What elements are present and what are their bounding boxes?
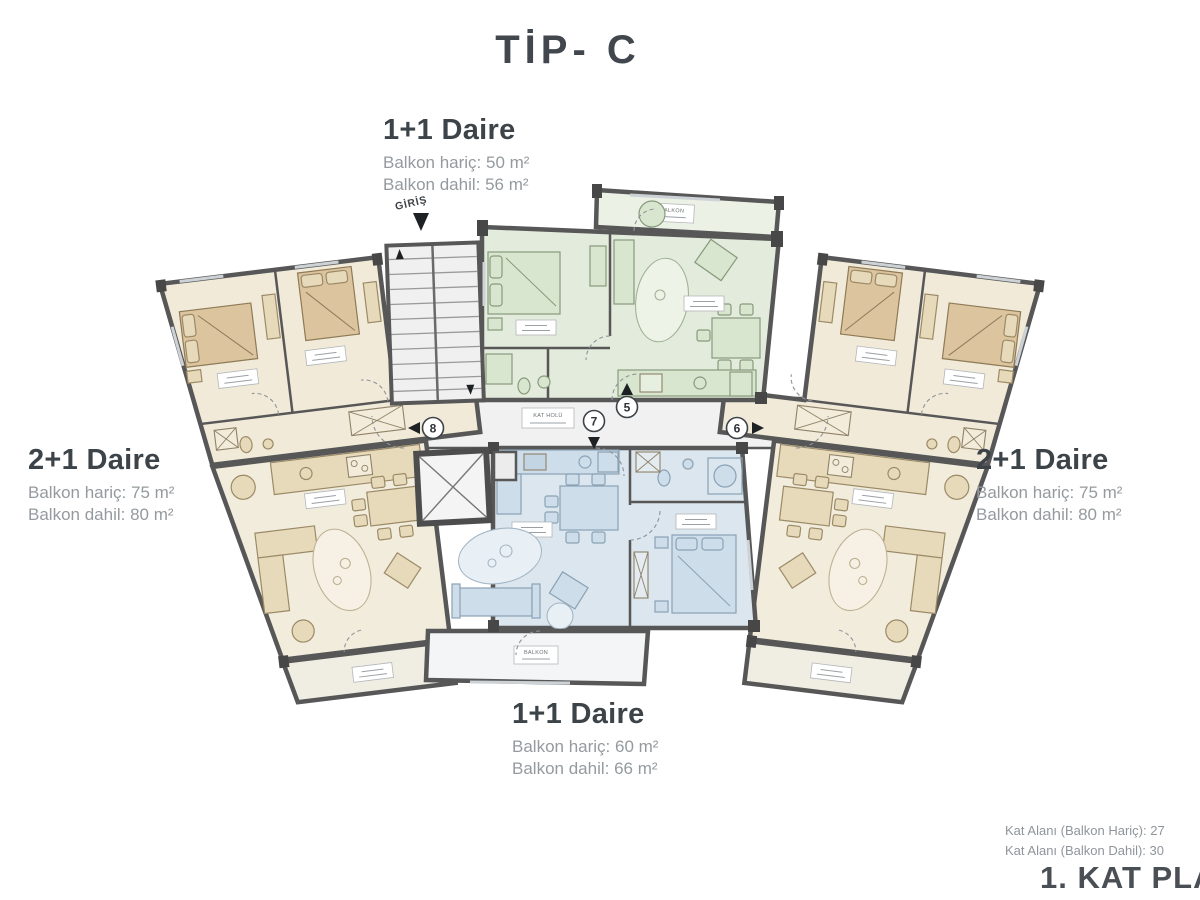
entrance-marker: GİRİŞ bbox=[394, 193, 429, 231]
svg-text:5: 5 bbox=[624, 401, 631, 415]
svg-text:8: 8 bbox=[430, 422, 437, 436]
sofa bbox=[614, 240, 634, 304]
dresser bbox=[590, 246, 606, 286]
bed bbox=[841, 266, 903, 340]
svg-text:KAT HOLÜ: KAT HOLÜ bbox=[533, 412, 562, 419]
unit-area-incl: Balkon dahil: 56 m² bbox=[383, 175, 529, 195]
room-label-box bbox=[516, 320, 556, 335]
unit-area-excl: Balkon hariç: 75 m² bbox=[976, 483, 1122, 503]
plant bbox=[639, 201, 665, 227]
bed bbox=[298, 266, 360, 340]
floor-plan-name: 1. KAT PLA bbox=[1040, 860, 1200, 896]
unit-area-excl: Balkon hariç: 60 m² bbox=[512, 737, 658, 757]
shaft bbox=[494, 452, 516, 480]
balcony: BALKON bbox=[592, 184, 784, 237]
svg-text:6: 6 bbox=[734, 422, 741, 436]
unit-area-excl: Balkon hariç: 75 m² bbox=[28, 483, 174, 503]
unit-area-incl: Balkon dahil: 80 m² bbox=[28, 505, 174, 525]
floor-area-incl: Kat Alanı (Balkon Dahil): 30 bbox=[1005, 841, 1165, 861]
unit-label-left: 2+1 Daire Balkon hariç: 75 m² Balkon dah… bbox=[28, 444, 174, 527]
floor-area-excl: Kat Alanı (Balkon Hariç): 27 bbox=[1005, 821, 1165, 841]
room-label-box bbox=[684, 296, 724, 311]
apartment-top-center: BALKON bbox=[477, 184, 784, 404]
page-title: TİP- C bbox=[0, 28, 1136, 73]
kitchen-counter bbox=[618, 370, 756, 396]
rug bbox=[547, 603, 573, 629]
wardrobe bbox=[214, 428, 238, 451]
unit-area-excl: Balkon hariç: 50 m² bbox=[383, 153, 529, 173]
elevator bbox=[416, 450, 490, 524]
staircase bbox=[386, 242, 483, 403]
svg-text:7: 7 bbox=[591, 415, 598, 429]
unit-label-top: 1+1 Daire Balkon hariç: 50 m² Balkon dah… bbox=[383, 114, 529, 197]
unit-label-right: 2+1 Daire Balkon hariç: 75 m² Balkon dah… bbox=[976, 444, 1122, 527]
unit-name: 2+1 Daire bbox=[976, 444, 1122, 477]
balcony-label: BALKON bbox=[524, 650, 548, 656]
wing-bottom-right bbox=[741, 440, 987, 709]
unit-area-incl: Balkon dahil: 66 m² bbox=[512, 759, 658, 779]
wardrobe bbox=[634, 552, 648, 598]
room-label-box bbox=[676, 514, 716, 529]
entrance-arrow-icon bbox=[413, 213, 429, 231]
unit-name: 1+1 Daire bbox=[383, 114, 529, 147]
unit-label-bottom: 1+1 Daire Balkon hariç: 60 m² Balkon dah… bbox=[512, 698, 658, 781]
unit-name: 2+1 Daire bbox=[28, 444, 174, 477]
balcony: BALKON bbox=[426, 631, 648, 684]
sofa bbox=[452, 584, 540, 618]
unit-area-incl: Balkon dahil: 80 m² bbox=[976, 505, 1122, 525]
floor-area-summary: Kat Alanı (Balkon Hariç): 27 Kat Alanı (… bbox=[1005, 821, 1165, 860]
hall-label: KAT HOLÜ bbox=[522, 408, 574, 428]
unit-name: 1+1 Daire bbox=[512, 698, 658, 731]
